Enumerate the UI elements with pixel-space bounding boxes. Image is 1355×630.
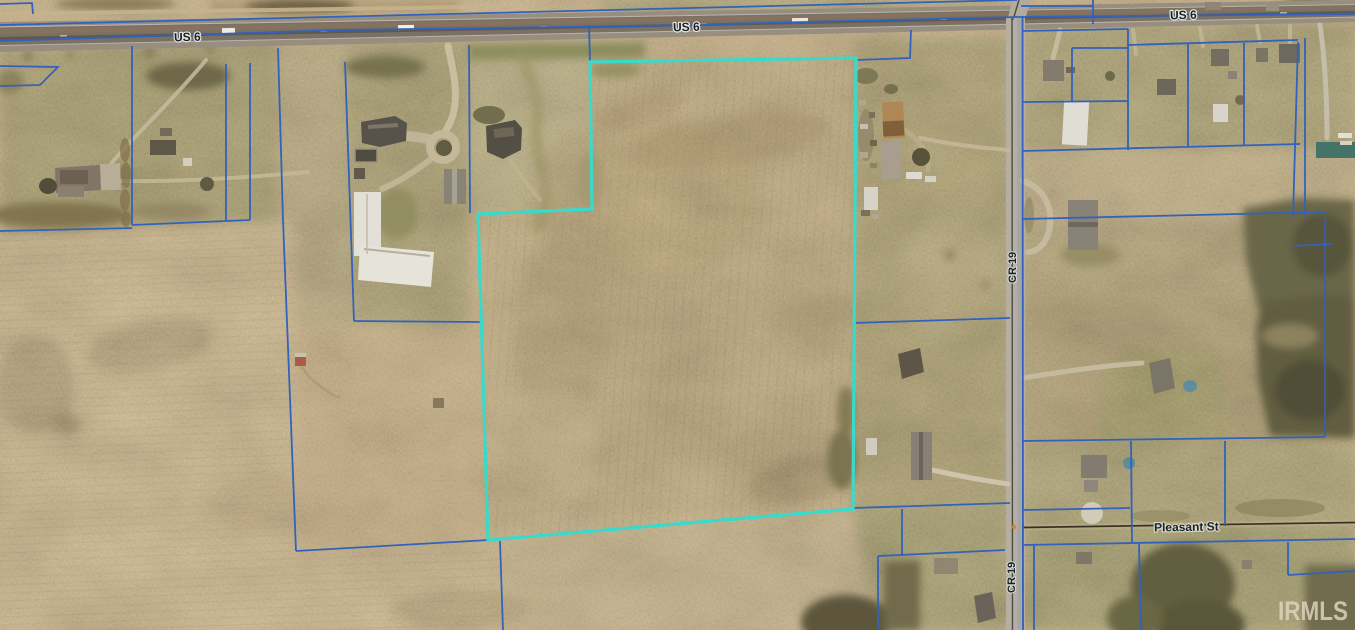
svg-text:US 6: US 6	[1170, 8, 1197, 23]
svg-text:CR 19: CR 19	[1007, 252, 1019, 283]
svg-text:US 6: US 6	[673, 20, 700, 35]
svg-text:IRMLS: IRMLS	[1278, 596, 1348, 626]
svg-text:CR 19: CR 19	[1006, 562, 1018, 593]
svg-text:US 6: US 6	[174, 30, 201, 45]
svg-text:Pleasant St: Pleasant St	[1154, 519, 1219, 534]
